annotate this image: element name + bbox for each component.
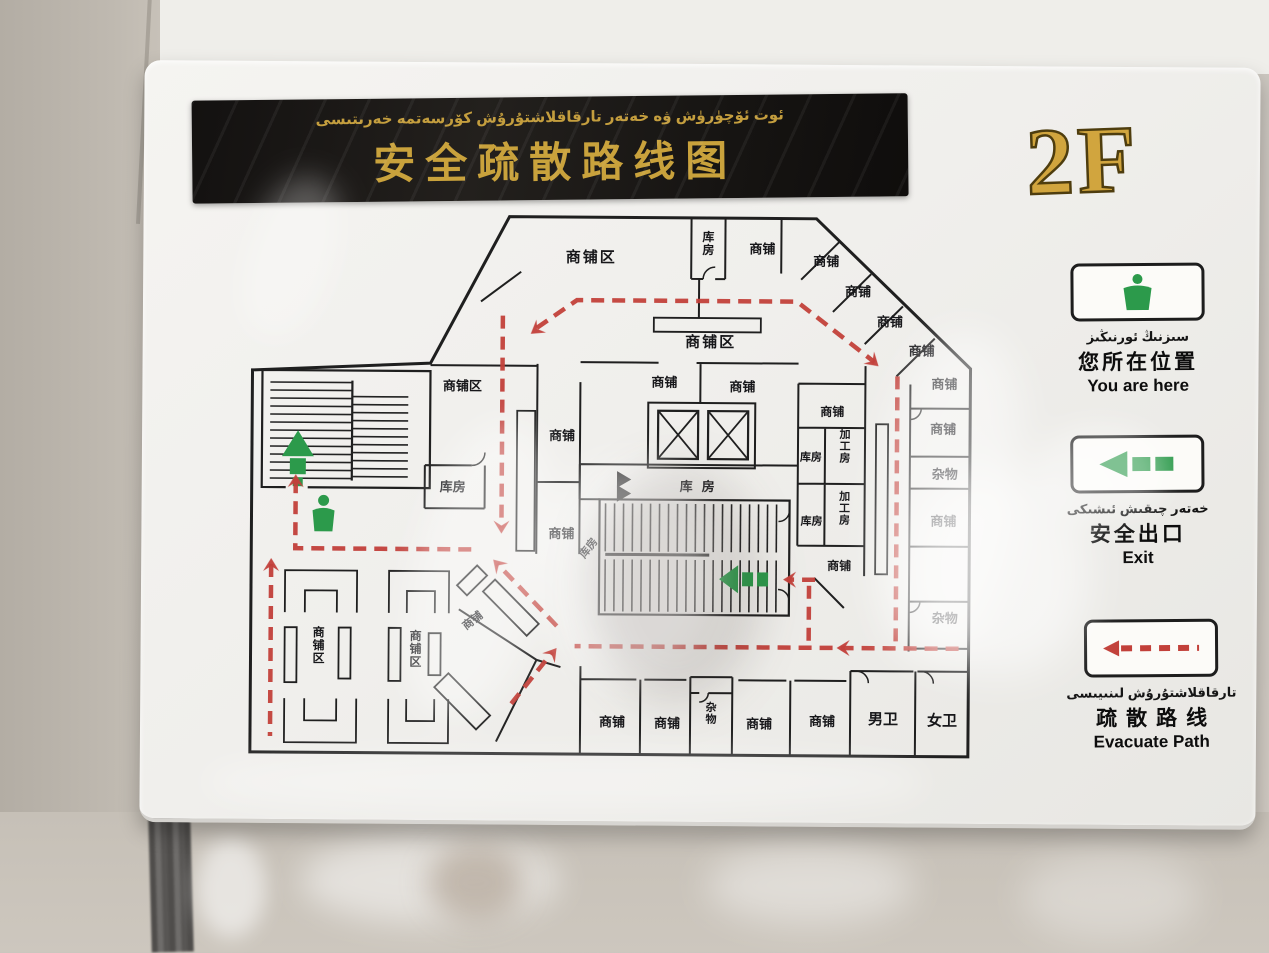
sign-title-chinese: 安全疏散路线图: [363, 126, 738, 191]
room-label: 商铺: [820, 404, 844, 419]
room-label: 商铺: [548, 526, 574, 541]
room-label: 商铺: [651, 375, 677, 390]
room-label: 商铺: [749, 241, 775, 256]
room-label: 库房: [440, 479, 466, 494]
exit-icon-box: [1070, 435, 1204, 494]
dark-column-strip: [148, 813, 194, 952]
room-label: 加工房: [838, 427, 850, 465]
room-label: 商铺: [809, 714, 835, 729]
room-label: 男卫: [868, 711, 898, 728]
room-label: 商铺: [599, 714, 625, 729]
stairwell-central: [599, 499, 790, 615]
sign-title-banner: ئوت ئۆچۈرۈش ۋە خەتەر تارقاقلاشتۇرۇش كۆرس…: [192, 93, 909, 203]
room-label: 商铺: [813, 254, 839, 269]
room-label: 杂物: [706, 700, 717, 726]
room-label: 商铺: [746, 716, 772, 731]
room-label: 商铺: [877, 314, 903, 329]
stairwell-west: [261, 370, 430, 532]
room-label: 商铺区: [566, 248, 617, 266]
room-label: 商铺: [729, 379, 755, 394]
room-label: 商铺: [931, 377, 957, 392]
evacuate-path-icon-box: [1084, 619, 1218, 678]
person-icon: [1119, 273, 1155, 311]
you-are-here-icon-box: [1070, 263, 1204, 322]
legend-english-label: Evacuate Path: [1057, 731, 1247, 752]
room-label: 库房: [800, 514, 822, 528]
room-label: 商铺: [654, 716, 680, 731]
room-label: 库房: [680, 479, 724, 494]
you-are-here-person-icon: [312, 495, 334, 532]
legend-chinese-label: 安全出口: [1043, 517, 1233, 548]
legend-evacuate-path: تارقاقلاشتۇرۇش لىنىيىسى 疏散路线 Evacuate Pa…: [1056, 618, 1247, 752]
legend-you-are-here: سىزنىڭ ئورنىڭىز 您所在位置 You are here: [1042, 262, 1233, 396]
photo-of-evacuation-sign: { "sign": { "floor_label": "2F", "banner…: [0, 0, 1269, 952]
room-label: 商铺区: [443, 378, 482, 393]
room-label: 商铺: [549, 428, 575, 443]
room-label: 女卫: [927, 712, 957, 730]
floor-label-2f: 2F: [1024, 99, 1258, 217]
dashed-arrow-icon: [1101, 636, 1201, 661]
exit-arrow-icon-map: [719, 565, 768, 593]
legend-uyghur-label: سىزنىڭ ئورنىڭىز: [1043, 328, 1233, 345]
room-label: 库房: [702, 229, 714, 257]
legend-uyghur-label: تارقاقلاشتۇرۇش لىنىيىسى: [1056, 684, 1246, 701]
room-label: 商铺区: [312, 624, 324, 665]
room-label: 商铺: [827, 558, 851, 573]
wall-left-column: [0, 0, 160, 952]
exit-arrow-icon: [1095, 449, 1179, 480]
elevator-block: [648, 403, 755, 469]
room-label: 商铺: [930, 422, 956, 437]
legend-chinese-label: 疏散路线: [1056, 701, 1246, 732]
room-label: 加工房: [838, 489, 850, 527]
room-label: 库房: [800, 450, 822, 464]
room-label: 商铺区: [685, 333, 736, 351]
floor-plan: 商铺区库房商铺商铺商铺商铺商铺商铺商铺杂物商铺杂物商铺区商铺商铺库房商铺商铺库房…: [238, 212, 1047, 768]
legend-uyghur-label: خەتەر چىقىش ئىشىكى: [1043, 500, 1233, 517]
evacuation-sign-panel: ئوت ئۆچۈرۈش ۋە خەتەر تارقاقلاشتۇرۇش كۆرس…: [139, 60, 1260, 830]
legend-chinese-label: 您所在位置: [1043, 345, 1233, 376]
sign-title-uyghur: ئوت ئۆچۈرۈش ۋە خەتەر تارقاقلاشتۇرۇش كۆرس…: [316, 105, 784, 128]
legend-english-label: You are here: [1043, 375, 1233, 396]
room-label: 杂物: [932, 611, 958, 626]
room-label: 商铺区: [409, 628, 421, 669]
room-label: 杂物: [932, 467, 958, 482]
room-label: 商铺: [909, 343, 935, 358]
legend-exit: خەتەر چىقىش ئىشىكى 安全出口 Exit: [1042, 434, 1233, 568]
room-label: 商铺: [930, 514, 956, 529]
room-label: 商铺: [845, 284, 871, 299]
legend-english-label: Exit: [1043, 547, 1233, 568]
